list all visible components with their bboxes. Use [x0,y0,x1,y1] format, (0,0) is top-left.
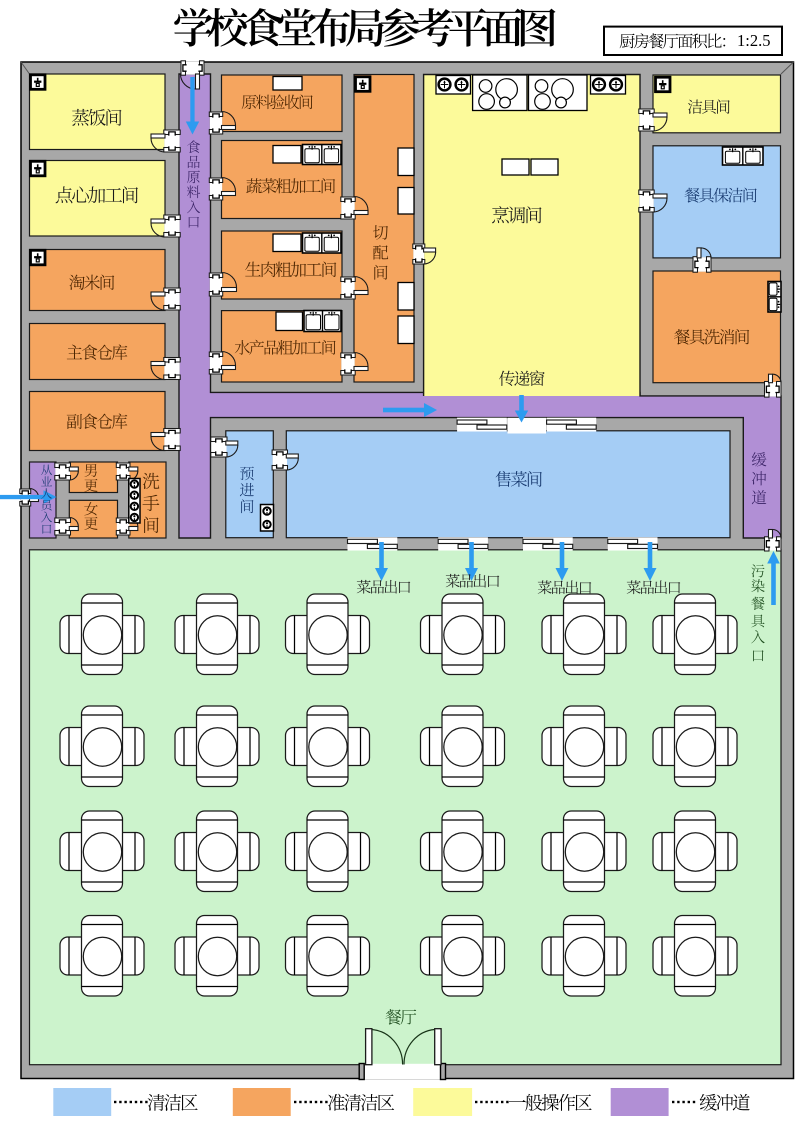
svg-text:1:2.5: 1:2.5 [737,31,770,50]
